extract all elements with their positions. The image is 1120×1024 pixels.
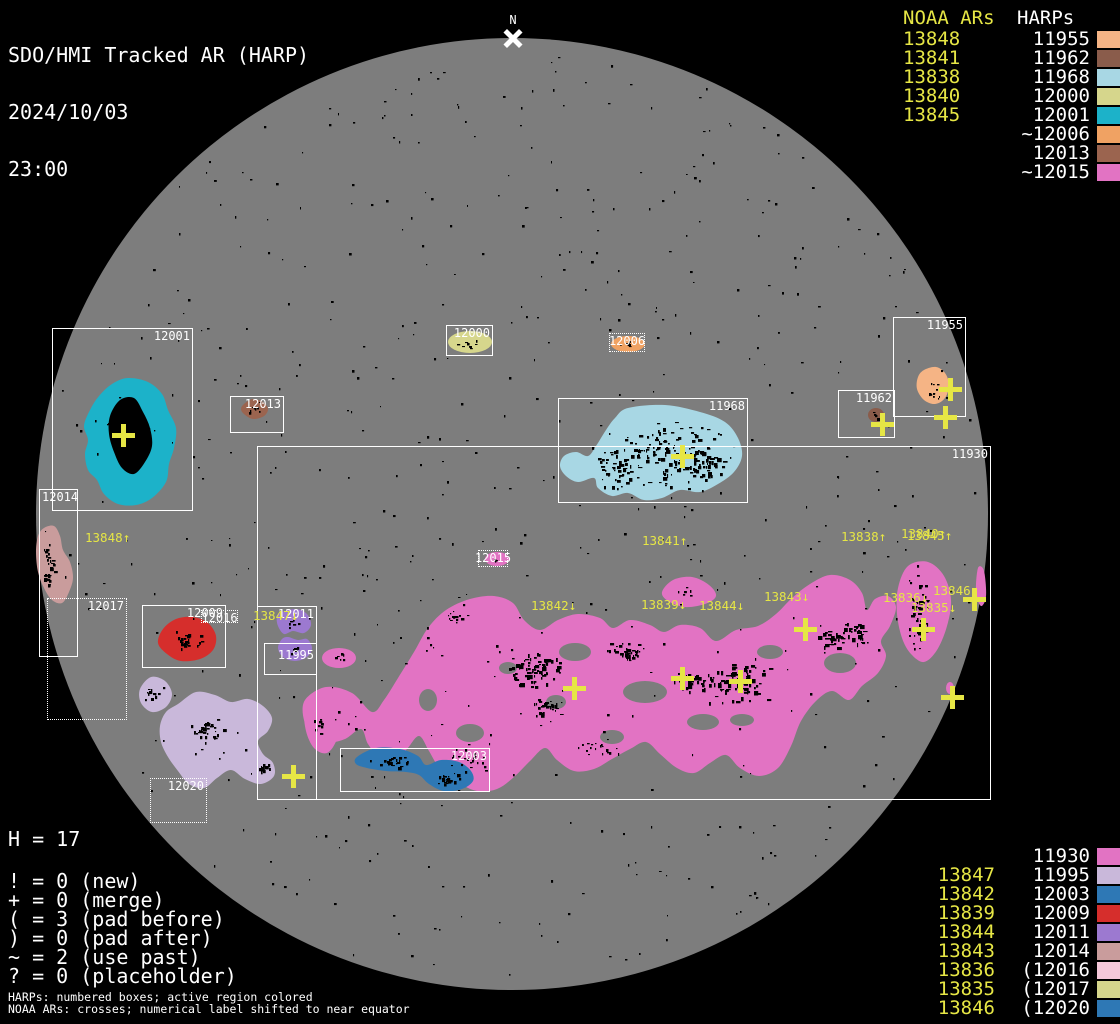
sunspot-speck — [207, 733, 208, 735]
noise-speck — [864, 253, 865, 255]
noise-speck — [329, 108, 331, 109]
noaa-ar-label-13844: 13844↓ — [699, 599, 744, 612]
noise-speck — [703, 131, 706, 132]
noaa-ar-cross — [794, 618, 817, 641]
noise-speck — [536, 398, 539, 400]
harp-box-label-12017: 12017 — [88, 600, 124, 612]
noise-speck — [202, 478, 204, 480]
north-x-icon — [498, 28, 528, 50]
noise-speck — [563, 269, 566, 271]
legend-color-swatch — [1097, 126, 1120, 143]
sunspot-speck — [148, 689, 151, 690]
noise-speck — [794, 257, 796, 260]
noise-speck — [662, 319, 664, 321]
footnote: NOAA ARs: crosses; numerical label shift… — [8, 1003, 410, 1015]
sunspot-speck — [151, 689, 152, 691]
noise-speck — [183, 313, 184, 314]
noise-speck — [757, 897, 758, 899]
legend-color-swatch — [1097, 867, 1120, 884]
noaa-ar-label-13841: 13841↑ — [642, 534, 687, 547]
legend-color-swatch — [1097, 69, 1120, 86]
legend-color-swatch — [1097, 164, 1120, 181]
noise-speck — [551, 62, 552, 63]
noise-speck — [330, 319, 332, 320]
noise-speck — [553, 89, 555, 92]
noise-speck — [895, 306, 897, 307]
legend-harp-number: ~12015 — [1000, 163, 1090, 182]
noise-speck — [284, 886, 287, 888]
noise-speck — [625, 959, 627, 961]
noise-speck — [177, 290, 179, 291]
harp-box-label-11968: 11968 — [709, 400, 745, 412]
noise-speck — [353, 122, 355, 124]
noise-speck — [818, 306, 821, 308]
noaa-ar-cross — [563, 677, 586, 700]
noise-speck — [560, 217, 562, 218]
noise-speck — [439, 438, 441, 441]
noise-speck — [304, 266, 306, 267]
noise-speck — [447, 358, 448, 359]
noaa-ar-cross — [934, 406, 957, 429]
noise-speck — [675, 314, 676, 317]
noise-speck — [466, 440, 469, 441]
noise-speck — [801, 362, 804, 363]
noise-speck — [329, 124, 331, 126]
noise-speck — [148, 304, 150, 306]
noise-speck — [548, 342, 550, 343]
noise-speck — [316, 836, 317, 838]
noaa-ar-label-13838: 13838↑ — [841, 530, 886, 543]
legend-color-swatch — [1097, 905, 1120, 922]
harp-box-label-11930: 11930 — [952, 448, 988, 460]
noise-speck — [219, 347, 222, 349]
legend-color-swatch — [1097, 924, 1120, 941]
noise-speck — [352, 370, 355, 373]
noise-speck — [474, 136, 476, 137]
noaa-ar-cross — [282, 765, 305, 788]
noise-speck — [593, 199, 594, 201]
noise-speck — [707, 834, 710, 836]
noaa-ar-label-13839: 13839↓ — [641, 598, 686, 611]
noise-speck — [214, 379, 217, 381]
noise-speck — [454, 274, 456, 275]
noise-speck — [103, 583, 106, 584]
sunspot-speck — [203, 732, 206, 734]
noise-speck — [439, 929, 441, 931]
noaa-ar-label-13848: 13848↑ — [85, 531, 130, 544]
noaa-ar-cross — [941, 686, 964, 709]
noise-speck — [651, 107, 652, 110]
noise-speck — [649, 208, 650, 211]
noise-speck — [693, 166, 695, 167]
noise-speck — [418, 442, 421, 443]
noise-speck — [422, 245, 424, 247]
noise-speck — [348, 816, 350, 819]
north-marker: N — [498, 14, 528, 50]
noise-speck — [461, 916, 462, 917]
noise-speck — [179, 233, 181, 236]
noise-speck — [568, 913, 570, 915]
noise-speck — [662, 200, 664, 202]
noise-speck — [402, 325, 404, 327]
noise-speck — [592, 211, 594, 213]
noise-speck — [903, 271, 905, 274]
noise-speck — [411, 955, 414, 957]
noaa-ar-cross — [729, 670, 752, 693]
noise-speck — [351, 411, 352, 413]
noise-speck — [812, 187, 815, 189]
noise-speck — [825, 839, 828, 840]
noise-speck — [482, 253, 484, 255]
noise-speck — [461, 403, 463, 406]
noise-speck — [418, 142, 420, 144]
noise-speck — [168, 323, 171, 324]
harp-count: H = 17 — [8, 830, 80, 849]
noise-speck — [239, 674, 241, 677]
noise-speck — [463, 886, 465, 888]
harp-box-12003: 12003 — [340, 748, 490, 792]
noise-speck — [889, 275, 891, 276]
noise-speck — [769, 384, 771, 386]
harp-box-label-12006: 12006 — [609, 335, 645, 347]
noise-speck — [270, 861, 272, 863]
noise-speck — [386, 200, 389, 203]
noise-speck — [531, 147, 532, 149]
noise-speck — [563, 105, 565, 106]
noise-speck — [193, 456, 195, 458]
noise-speck — [285, 808, 287, 809]
noise-speck — [532, 90, 533, 93]
plot-title-block: SDO/HMI Tracked AR (HARP) 2024/10/03 23:… — [8, 8, 309, 217]
legend-color-swatch — [1097, 962, 1120, 979]
noise-speck — [762, 857, 764, 860]
noise-speck — [618, 270, 620, 272]
sunspot-speck — [194, 731, 196, 735]
noise-speck — [690, 332, 691, 335]
noise-speck — [618, 319, 621, 322]
legend-color-swatch — [1097, 981, 1120, 998]
sunspot-speck — [205, 742, 207, 745]
noise-speck — [737, 289, 739, 292]
harp-box-label-12003: 12003 — [451, 750, 487, 762]
noise-speck — [597, 230, 599, 231]
harp-box-11955: 11955 — [893, 317, 966, 417]
noise-speck — [211, 582, 212, 583]
sunspot-speck — [207, 722, 209, 724]
noise-speck — [368, 824, 370, 826]
noise-speck — [521, 306, 522, 308]
noise-speck — [800, 258, 801, 260]
noise-speck — [840, 361, 841, 363]
noise-speck — [802, 247, 804, 250]
sunspot-speck — [210, 726, 213, 727]
noise-speck — [778, 332, 780, 334]
sunspot-speck — [198, 732, 199, 733]
noise-speck — [426, 264, 427, 265]
noise-speck — [541, 935, 542, 937]
noaa-ar-cross — [912, 618, 935, 641]
noise-speck — [347, 410, 349, 411]
sunspot-speck — [196, 733, 198, 735]
noise-speck — [201, 330, 202, 331]
noise-speck — [288, 303, 290, 306]
noise-speck — [504, 415, 505, 418]
noise-speck — [245, 385, 247, 387]
legend-color-swatch — [1097, 886, 1120, 903]
sunspot-speck — [214, 727, 216, 729]
noise-speck — [774, 855, 776, 857]
noise-speck — [352, 184, 355, 186]
noise-speck — [706, 88, 708, 91]
noise-speck — [758, 235, 760, 237]
noise-speck — [635, 862, 636, 864]
noaa-ar-label-13847: 13847↓ — [253, 609, 298, 622]
noise-speck — [223, 752, 225, 754]
noise-speck — [556, 189, 558, 191]
noise-speck — [357, 377, 359, 380]
harp-box-12017: 12017 — [47, 598, 127, 720]
noise-speck — [570, 822, 572, 824]
noise-speck — [699, 97, 702, 98]
noaa-ar-label-13845: 13845↑ — [907, 529, 952, 542]
noise-speck — [292, 351, 294, 353]
noise-speck — [418, 78, 420, 81]
legend-top-noaa-header: NOAA ARs — [903, 9, 995, 28]
harp-box-12013: 12013 — [230, 396, 284, 433]
noise-speck — [534, 359, 535, 361]
noise-speck — [382, 117, 383, 119]
noise-speck — [775, 203, 777, 206]
noise-speck — [465, 121, 467, 123]
noise-speck — [770, 852, 772, 854]
noise-speck — [555, 71, 556, 73]
harp-box-label-11962: 11962 — [856, 392, 892, 404]
noise-speck — [640, 172, 642, 173]
noise-speck — [537, 317, 539, 318]
noise-speck — [669, 251, 672, 252]
noise-speck — [525, 207, 527, 209]
noise-speck — [425, 192, 426, 193]
noise-speck — [619, 394, 621, 396]
noise-speck — [729, 123, 730, 124]
legend-color-swatch — [1097, 107, 1120, 124]
noise-speck — [557, 941, 559, 943]
noise-speck — [219, 758, 221, 760]
noise-speck — [764, 364, 765, 365]
noise-speck — [384, 115, 386, 117]
noise-speck — [815, 855, 816, 857]
noise-speck — [281, 434, 282, 437]
noise-speck — [699, 180, 701, 182]
noise-speck — [153, 269, 156, 271]
noise-speck — [499, 922, 501, 923]
sunspot-speck — [217, 734, 219, 737]
noise-speck — [434, 928, 437, 930]
noise-speck — [236, 574, 237, 575]
noise-speck — [437, 78, 439, 80]
noise-speck — [400, 803, 401, 804]
noise-speck — [581, 251, 582, 253]
noise-speck — [628, 303, 631, 305]
noise-speck — [795, 266, 797, 269]
harp-box-11995: 11995 — [264, 643, 317, 675]
noise-speck — [282, 259, 283, 260]
noise-speck — [393, 915, 395, 917]
noise-speck — [339, 847, 340, 848]
noise-speck — [237, 732, 239, 734]
noise-speck — [228, 779, 230, 781]
noise-speck — [777, 134, 780, 136]
noise-speck — [309, 879, 310, 881]
noise-speck — [878, 335, 880, 338]
noise-speck — [587, 189, 589, 191]
noise-speck — [608, 103, 611, 104]
noise-speck — [596, 252, 598, 254]
noaa-ar-label-13842: 13842↓ — [531, 599, 576, 612]
noise-speck — [251, 773, 252, 775]
noaa-ar-cross — [963, 588, 986, 611]
noise-speck — [414, 322, 417, 324]
sunspot-speck — [215, 731, 216, 732]
noise-speck — [248, 568, 249, 569]
noise-speck — [325, 835, 327, 838]
noise-speck — [441, 805, 443, 806]
noise-speck — [142, 772, 144, 774]
noise-speck — [371, 204, 373, 206]
noise-speck — [969, 419, 972, 422]
noise-speck — [214, 865, 215, 868]
legend-color-swatch — [1097, 88, 1120, 105]
noise-speck — [509, 974, 511, 976]
noise-speck — [668, 846, 670, 848]
harp-box-label-12020: 12020 — [168, 780, 204, 792]
harp-box-12016: 12016 — [201, 610, 238, 623]
noise-speck — [609, 956, 612, 957]
noise-speck — [883, 317, 885, 320]
noise-speck — [211, 540, 212, 541]
legend-color-swatch — [1097, 31, 1120, 48]
noise-speck — [763, 127, 765, 129]
noise-speck — [674, 191, 675, 194]
noise-speck — [802, 157, 804, 159]
noise-speck — [275, 833, 276, 835]
noise-speck — [791, 392, 794, 394]
north-label: N — [498, 14, 528, 26]
noise-speck — [251, 626, 253, 628]
sunspot-speck — [150, 692, 152, 694]
noise-speck — [814, 327, 816, 329]
noise-speck — [569, 251, 570, 253]
noise-speck — [229, 538, 230, 539]
noise-speck — [719, 826, 721, 828]
noise-speck — [539, 923, 540, 925]
noise-speck — [442, 304, 444, 306]
noise-speck — [229, 544, 231, 547]
noise-speck — [657, 337, 660, 339]
harp-box-12006: 12006 — [609, 333, 645, 352]
noise-speck — [717, 341, 720, 343]
noise-speck — [768, 285, 771, 286]
noise-speck — [688, 878, 690, 880]
noise-speck — [220, 594, 221, 596]
noise-speck — [331, 301, 334, 303]
noise-speck — [299, 364, 301, 366]
harp-box-label-11995: 11995 — [278, 649, 314, 661]
sunspot-speck — [201, 730, 202, 732]
noise-speck — [230, 452, 232, 453]
noise-speck — [621, 294, 622, 296]
noise-speck — [890, 257, 892, 259]
noise-speck — [413, 334, 414, 335]
noise-speck — [511, 802, 513, 803]
harp-box-12020: 12020 — [150, 778, 207, 823]
sunspot-speck — [202, 729, 205, 730]
noise-speck — [521, 107, 523, 110]
noise-speck — [613, 208, 615, 210]
noise-speck — [78, 563, 79, 565]
noise-speck — [628, 864, 629, 867]
noise-speck — [651, 826, 652, 829]
noise-speck — [402, 229, 403, 231]
noise-speck — [666, 875, 667, 876]
plot-date: 2024/10/03 — [8, 103, 309, 122]
noise-speck — [411, 217, 413, 220]
noise-speck — [611, 65, 613, 68]
noise-speck — [758, 315, 760, 317]
noise-speck — [279, 388, 280, 390]
noise-speck — [412, 845, 414, 847]
noise-speck — [398, 933, 400, 935]
noise-speck — [369, 860, 371, 862]
noise-speck — [503, 96, 506, 98]
harp-box-label-12013: 12013 — [245, 398, 281, 410]
sunspot-speck — [207, 728, 210, 730]
sunspot-speck — [205, 736, 207, 739]
sunspot-speck — [145, 699, 147, 701]
noise-speck — [838, 372, 839, 374]
legend-noaa-ar: 13845 — [903, 106, 995, 125]
noise-speck — [500, 815, 502, 817]
noise-speck — [404, 840, 407, 842]
solar-harp-plot: 1200112013120141200012006119681195511962… — [0, 0, 1120, 1024]
noise-speck — [754, 892, 756, 895]
noise-speck — [208, 439, 211, 440]
noise-speck — [762, 212, 764, 213]
noise-speck — [838, 246, 839, 248]
sunspot-speck — [200, 736, 202, 739]
noise-speck — [186, 538, 188, 540]
sunspot-speck — [223, 729, 227, 732]
noise-speck — [198, 400, 200, 402]
noise-speck — [916, 312, 919, 313]
legend-harp-number: (12020 — [1000, 999, 1090, 1018]
stat-line: ? = 0 (placeholder) — [8, 967, 237, 986]
noise-speck — [713, 162, 715, 165]
noaa-ar-cross — [112, 424, 135, 447]
noise-speck — [551, 880, 553, 883]
noise-speck — [740, 911, 742, 913]
harp-box-12001: 12001 — [52, 328, 193, 511]
sunspot-speck — [213, 736, 216, 739]
noise-speck — [488, 874, 490, 877]
noise-speck — [828, 806, 831, 808]
noise-speck — [711, 886, 714, 888]
noise-speck — [943, 436, 945, 438]
legend-top-harps-header: HARPs — [1017, 9, 1074, 28]
noise-speck — [659, 871, 662, 872]
noaa-ar-label-13843: 13843↓ — [764, 590, 809, 603]
noise-speck — [736, 913, 738, 915]
